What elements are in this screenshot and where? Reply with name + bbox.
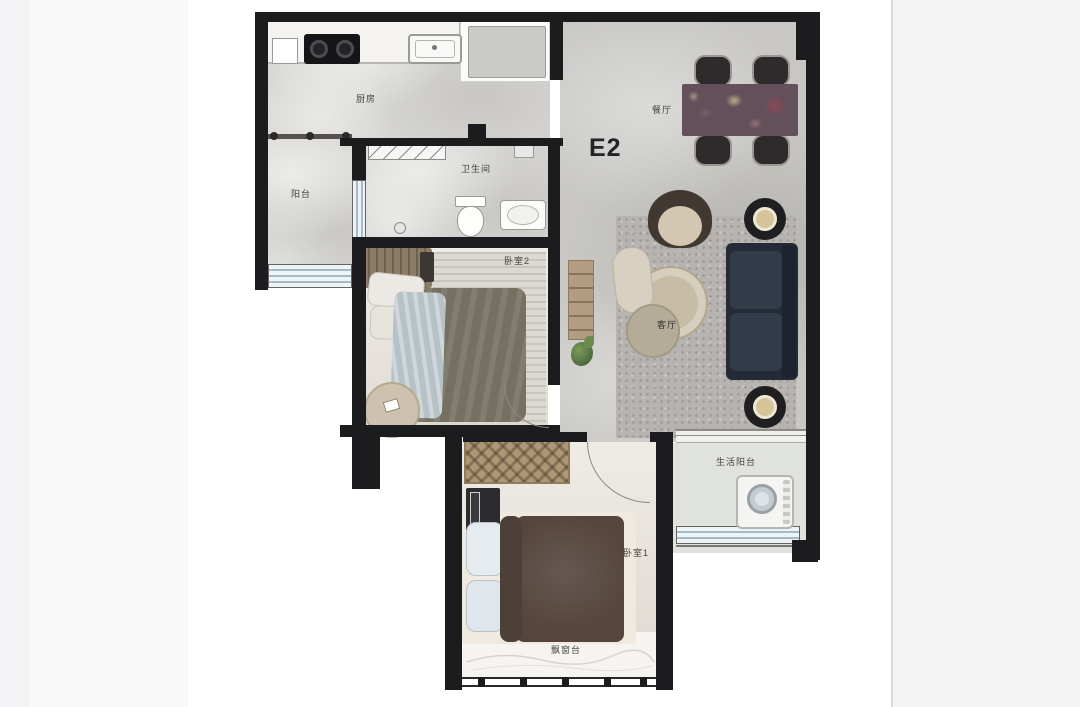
side-table-top <box>753 395 777 419</box>
bedroom2-bench-tray <box>420 252 434 282</box>
dining-table <box>682 84 798 136</box>
wall-bedroom1-left <box>445 432 462 690</box>
bay-mullion-tick <box>562 677 569 687</box>
toilet-bowl <box>457 206 484 237</box>
utility-balcony-frame-line <box>676 545 800 547</box>
bathroom-basin-bowl <box>507 205 539 225</box>
dining-label: 餐厅 <box>652 103 672 116</box>
kitchen-label: 厨房 <box>356 92 376 105</box>
plant-leaf <box>584 336 594 348</box>
floor-plan-page: E2 厨房 阳台 卫生间 卧室2 餐厅 客厅 生活阳台 卧室1 飘窗台 <box>0 0 1080 707</box>
sofa-cushion <box>730 313 782 371</box>
wall-bedroom2-top <box>352 237 560 248</box>
wall-balcony-corner <box>255 276 268 290</box>
right-panel <box>891 0 1080 707</box>
left-band-inner <box>30 0 188 707</box>
stove-burner-right <box>336 40 354 58</box>
bay-glazing-line-inner <box>462 685 656 687</box>
dining-chair <box>694 134 732 166</box>
bathroom-window <box>352 180 366 238</box>
utility-balcony-sill <box>676 429 806 443</box>
console-table <box>568 260 594 340</box>
wall-top-outer <box>255 12 820 22</box>
left-band <box>0 0 30 707</box>
bedroom1-duvet <box>516 516 624 642</box>
wall-right-outer <box>806 22 820 560</box>
wall-bathroom-left <box>352 138 366 180</box>
bay-mullion-tick <box>520 677 527 687</box>
bay-mullion-tick <box>640 677 647 687</box>
sofa-back <box>782 245 796 378</box>
dining-chair <box>752 55 790 87</box>
wall-corner-utility-bottom <box>792 540 818 562</box>
wall-bedroom2-left <box>352 248 366 428</box>
wall-bathroom-top <box>340 138 563 146</box>
bedroom1-pillow <box>466 580 504 632</box>
kitchen-faucet <box>432 45 437 50</box>
bedroom2-label: 卧室2 <box>504 254 530 267</box>
wall-bedroom1-right <box>656 432 673 690</box>
floor-drain <box>394 222 406 234</box>
side-table-top <box>753 207 777 231</box>
bedroom1-runner-rug <box>464 440 570 484</box>
armchair-cushion <box>658 206 702 246</box>
wall-bedroom1-top <box>463 432 587 442</box>
stove-burner-left <box>310 40 328 58</box>
balcony-window <box>268 264 352 288</box>
fridge <box>468 26 546 78</box>
washing-machine-panel <box>783 480 790 524</box>
kitchen-appliance <box>272 38 298 64</box>
wall-fridge-divider <box>550 12 563 80</box>
wall-stub-above-bathroom <box>468 124 486 138</box>
wall-bedroom2-right <box>548 146 560 385</box>
bay-window-label: 飘窗台 <box>551 643 581 656</box>
dining-chair <box>752 134 790 166</box>
slider-knob <box>306 132 314 140</box>
balcony-label: 阳台 <box>291 187 311 200</box>
ottoman-pouf <box>626 304 680 358</box>
utility-balcony-sill-line <box>676 435 806 436</box>
bedroom1-label: 卧室1 <box>623 546 649 559</box>
wall-left-outer <box>255 12 268 290</box>
washing-machine-drum <box>747 484 777 514</box>
bedroom1-pillow <box>466 522 504 576</box>
utility-balcony-label: 生活阳台 <box>716 455 756 468</box>
bay-mullion-tick <box>604 677 611 687</box>
sofa-cushion <box>730 251 782 309</box>
unit-label: E2 <box>589 134 622 163</box>
living-label: 客厅 <box>657 318 677 331</box>
wall-corner-below-bedroom2 <box>352 437 380 489</box>
slider-knob <box>270 132 278 140</box>
dining-chair <box>694 55 732 87</box>
bay-glazing-line-outer <box>462 677 656 679</box>
bay-mullion-tick <box>478 677 485 687</box>
bedroom1-headboard-roll <box>500 516 522 642</box>
bathroom-label: 卫生间 <box>461 162 491 175</box>
